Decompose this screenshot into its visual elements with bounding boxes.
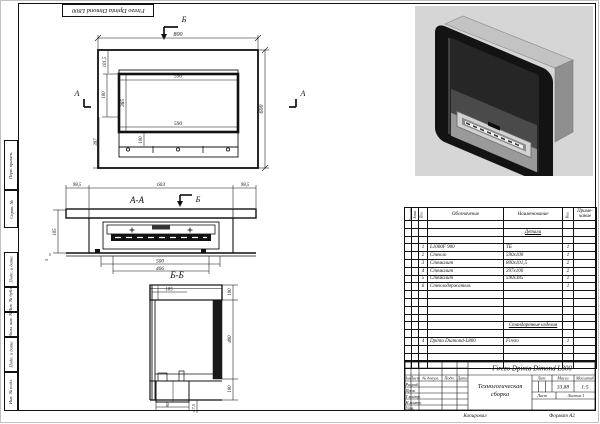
bom-empty-row <box>405 345 597 353</box>
dim-100-bottom: 100 <box>228 385 233 393</box>
bom-header-zone: Зона <box>414 211 418 219</box>
tb-label-razrab: Разраб. <box>405 382 419 387</box>
tb-label-data: Дата <box>457 375 468 380</box>
bom-header-designation: Обозначение <box>428 208 504 221</box>
bom-row-2: 2Стекло590х1001 <box>405 252 597 260</box>
dim-800: 800 <box>174 32 183 38</box>
dim-98-5-left: 98,5 <box>73 183 82 188</box>
tb-label-doc: № докум. <box>421 375 439 380</box>
bom-empty-row <box>405 353 597 361</box>
isometric-render <box>415 6 593 176</box>
margin-stamp-podp-data-1: Подп. и дата <box>4 252 18 287</box>
burner-logo-plate <box>152 226 170 230</box>
dim-590-top: 590 <box>174 74 182 80</box>
dim-185-top: 185 <box>165 288 173 293</box>
section-marker-b-top: Б <box>181 15 187 24</box>
section-bb-label: Б-Б <box>169 270 184 280</box>
dim-90: 90 <box>165 402 170 407</box>
dim-185-depth: 185 <box>53 228 58 236</box>
title-block: Изм Лист № докум. Подп. Дата Лит. Масса … <box>404 361 596 411</box>
section-aa-label: А-А <box>129 195 144 205</box>
bom-row-5: 5Стемалит590х3851 <box>405 275 597 283</box>
tb-label-podp: Подп. <box>443 375 454 380</box>
section-aa-drawing: А-А Б 98,5 603 98,5 500 406 185 5 <box>40 175 270 275</box>
dim-101-5: 101,5 <box>103 56 108 67</box>
tb-scale-value: 1:5 <box>581 385 588 391</box>
section-marker-a-left: А <box>74 89 80 98</box>
dim-400: 400 <box>228 335 233 343</box>
bom-header-note: Приме-чание <box>574 208 597 221</box>
bom-header-name: Наименование <box>504 208 563 221</box>
front-outer-rect <box>98 50 258 168</box>
bom-table: Формат Зона Поз. Обозначение Наименовани… <box>404 207 597 369</box>
dim-180: 180 <box>102 91 107 99</box>
bom-row-standard: 4Dpinta Diamond-L800Firezo1 <box>405 337 597 345</box>
dim-385: 385 <box>120 99 126 108</box>
bb-right-wall <box>213 300 222 379</box>
section-bb-drawing: Б-Б 185 100 400 100 90 47,5 <box>125 262 255 414</box>
tb-label-massa: Масса <box>556 375 568 380</box>
tb-label-masshtab: Масштаб <box>575 375 595 380</box>
bom-empty-row <box>405 314 597 322</box>
format-label: Формат А2 <box>533 413 591 419</box>
bom-header-qty: Кол. <box>566 211 570 218</box>
margin-stamp-sprav: Справ. № <box>4 190 18 228</box>
bom-row-4: 4Стемалит397х1002 <box>405 267 597 275</box>
bom-empty-row <box>405 306 597 314</box>
margin-stamp-podp-data-2: Подп. и дата <box>4 337 18 372</box>
margin-stamp-perv-primen: Перв. примен. <box>4 140 18 190</box>
margin-stamp-inv-podl: Инв. № подл. <box>4 372 18 411</box>
bb-dimension-lines <box>152 285 238 413</box>
tb-label-list: Лист <box>409 375 420 380</box>
bom-header-row: Формат Зона Поз. Обозначение Наименовани… <box>405 208 597 221</box>
copied-by-label: Копировал <box>440 413 510 419</box>
dim-600: 600 <box>259 105 265 114</box>
tb-label-utv: Утв. <box>406 406 415 411</box>
tb-label-sheet: Лист <box>536 393 547 398</box>
dim-603: 603 <box>157 182 165 188</box>
dim-47-5: 47,5 <box>191 403 197 411</box>
tb-label-nkontr: Н.контр. <box>405 400 422 405</box>
tb-designation: Firezo Dpinta Dimond L800 <box>491 365 572 373</box>
front-section-marks <box>84 27 296 107</box>
section-marker-a-right: А <box>300 89 306 98</box>
dim-100: 100 <box>139 136 144 144</box>
bom-row-6: 6Стеклодержатель1 <box>405 283 597 291</box>
tb-label-lit: Лит. <box>536 375 546 380</box>
dim-397: 397 <box>94 138 99 146</box>
bom-empty-row <box>405 221 597 229</box>
bom-empty-row <box>405 298 597 306</box>
bom-row-1: 1L1000F 900ТБ1 <box>405 244 597 252</box>
section-aa-marker-b: Б <box>195 195 201 204</box>
tb-label-sheets: Листов 1 <box>567 393 585 398</box>
bom-empty-row <box>405 291 597 299</box>
tb-doc-name-line1: Технологическая <box>478 383 523 390</box>
drawing-sheet: Firezo Dpinta Dimond L800 Перв. примен. … <box>0 0 600 424</box>
tb-label-tkontr: Т.контр. <box>406 394 421 399</box>
front-view-drawing: 800 Б 101,5 590 385 590 100 180 397 600 … <box>60 5 310 177</box>
dim-590-bottom: 590 <box>174 121 182 127</box>
dim-98-5-right: 98,5 <box>241 183 250 188</box>
bom-header-pos: Поз. <box>421 211 425 218</box>
bom-empty-row <box>405 236 597 244</box>
box-side-face <box>555 60 573 142</box>
dim-5-gap: 5 <box>44 258 49 261</box>
tb-label-prov: Пров. <box>405 388 416 393</box>
bom-empty-row <box>405 330 597 338</box>
bom-section-details: Детали <box>405 228 597 236</box>
tb-mass-value: 33,88 <box>556 385 569 391</box>
bom-row-3: 3Стемалит800х101,52 <box>405 259 597 267</box>
bom-section-standard: Стандартные изделия <box>405 322 597 330</box>
tb-doc-name-line2: сборка <box>491 391 509 398</box>
dim-100-top: 100 <box>228 288 233 296</box>
margin-stamp-vzam-inv: Взам. инв. № <box>4 312 18 337</box>
margin-stamp-inv-dubl: Инв. № дубл. <box>4 287 18 312</box>
